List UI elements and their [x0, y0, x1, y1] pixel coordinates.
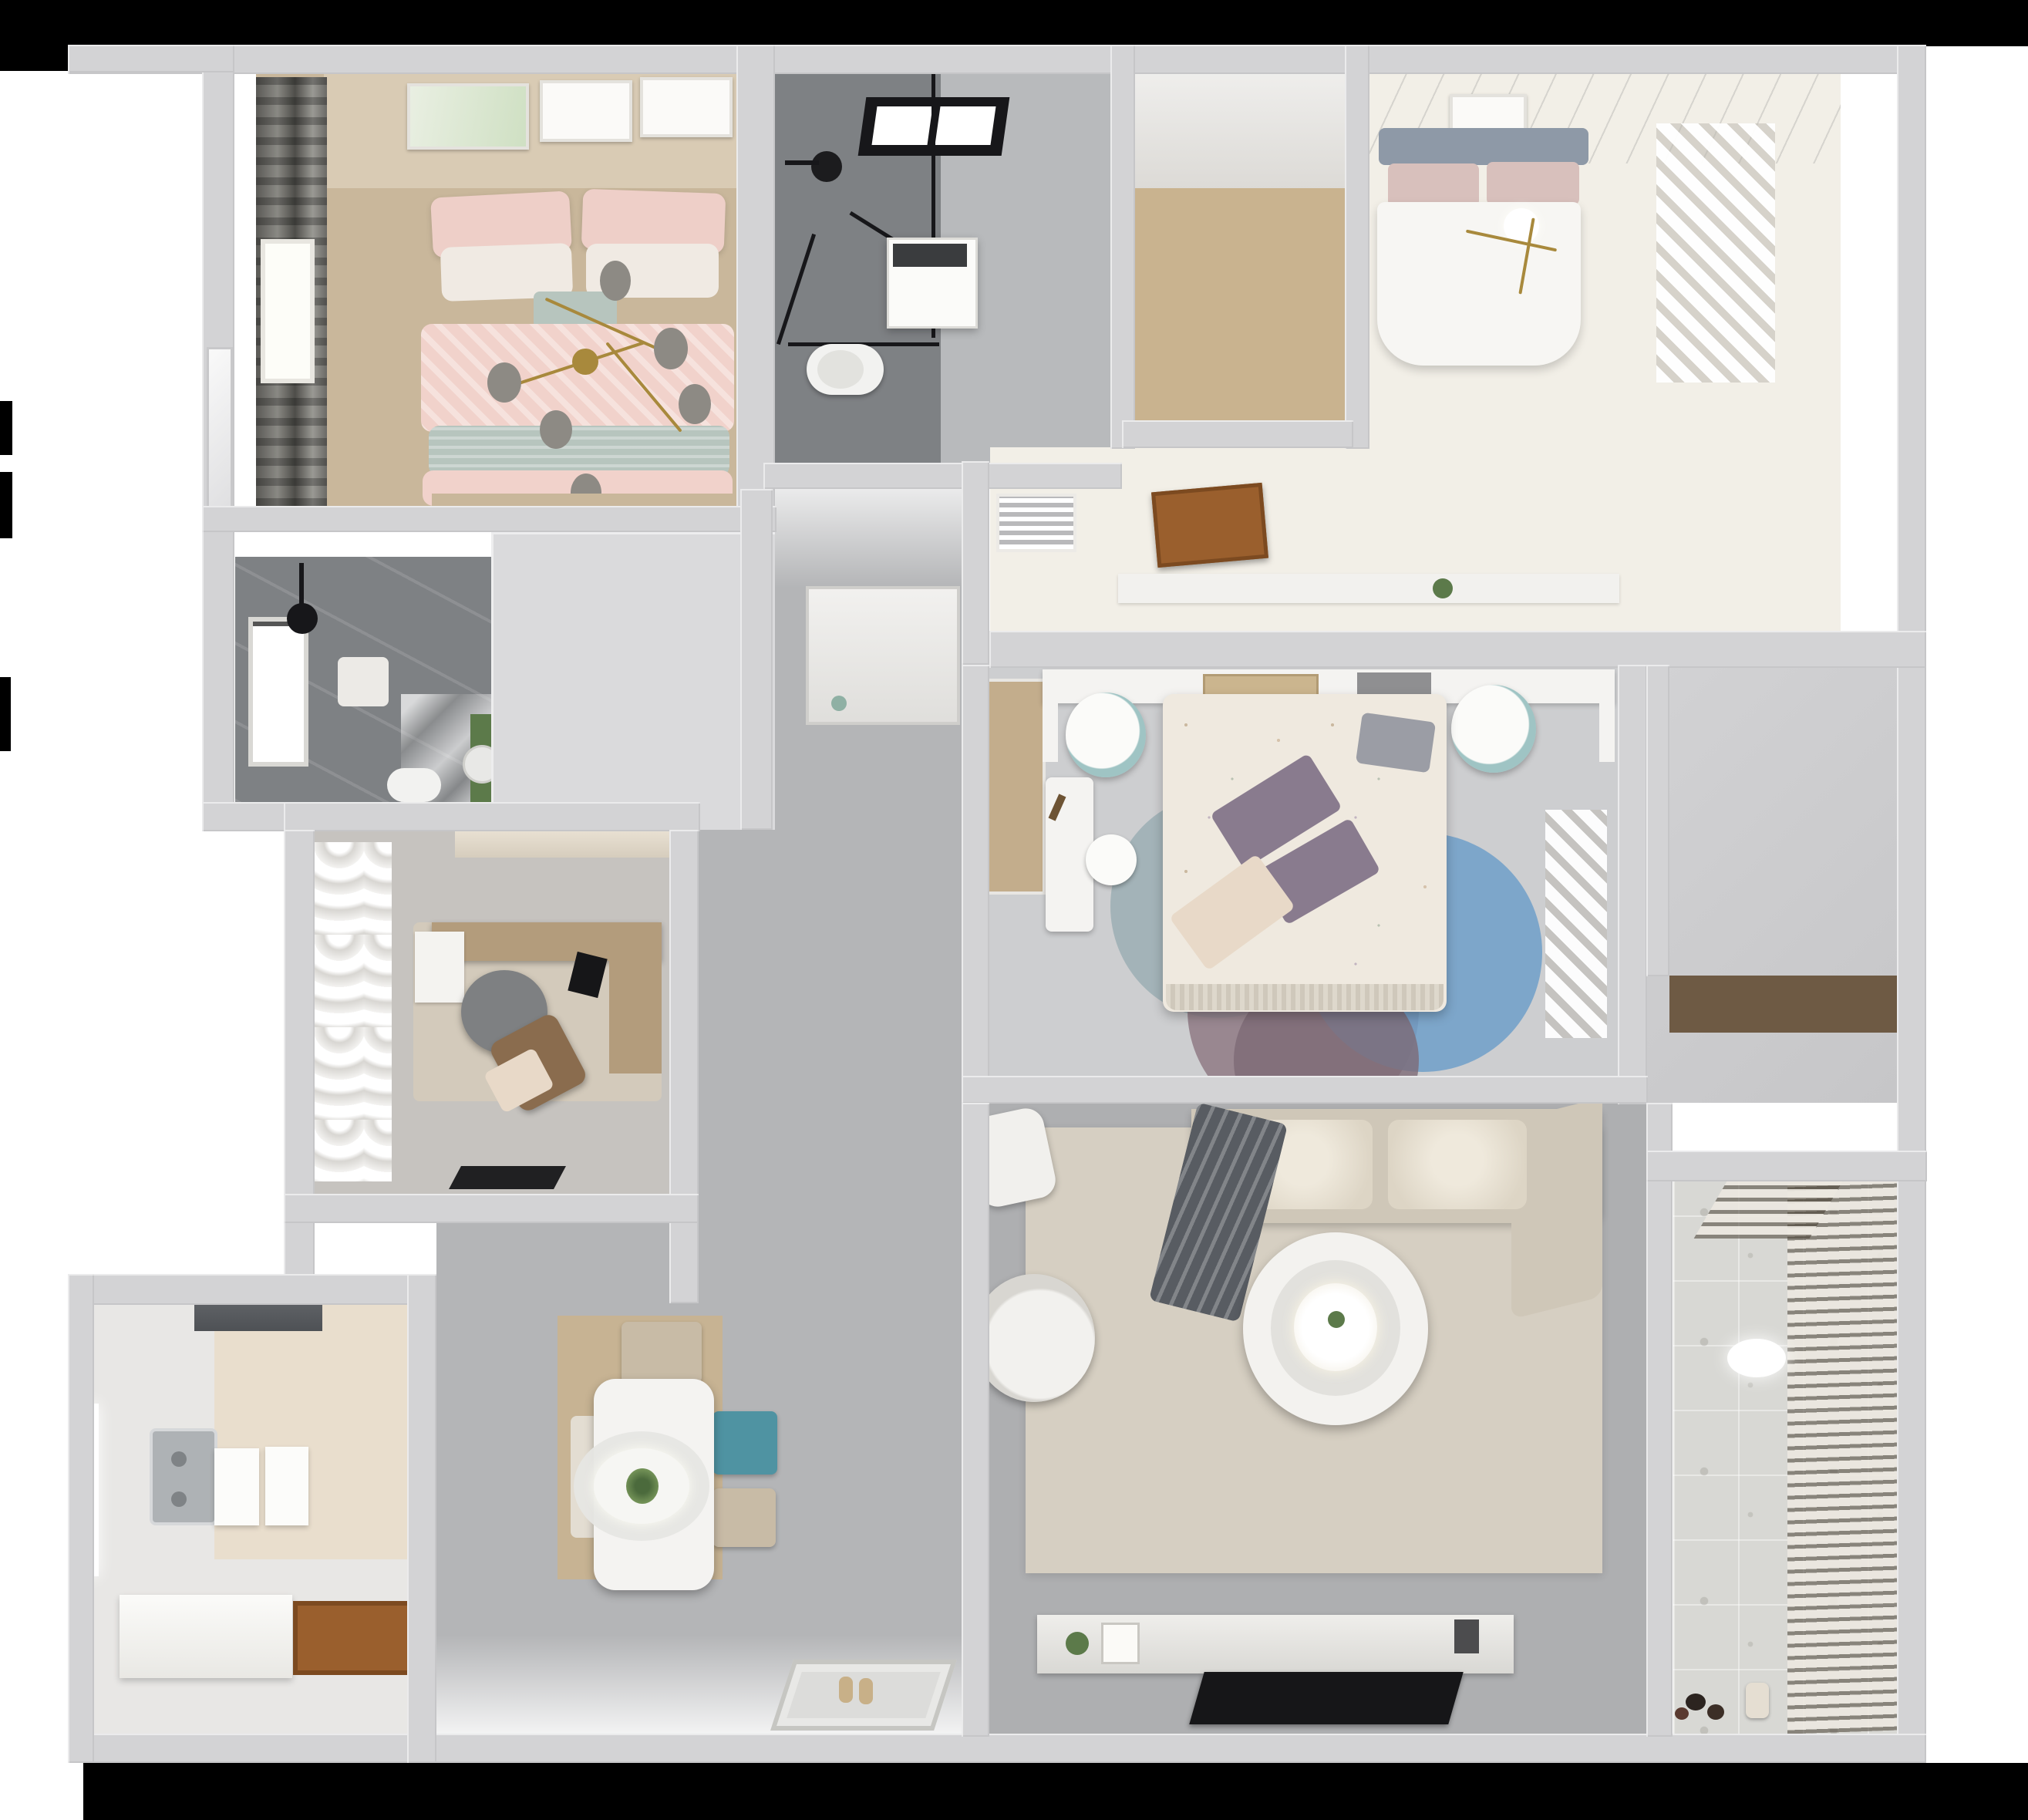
dining-chair-top [622, 1322, 702, 1384]
chandelier-bulb-4 [540, 410, 572, 449]
bathroom-left-pendant-rod [299, 563, 304, 606]
master-sheer-curtain [1656, 123, 1775, 383]
sofa-cushion-2 [1388, 1120, 1527, 1209]
study-papers [415, 932, 464, 1003]
kitchen-sink-drain-1 [171, 1451, 187, 1467]
pouf-right [1451, 685, 1536, 773]
bedroom-pink-window [261, 239, 315, 383]
mask-left-notch-1 [0, 401, 12, 455]
bedroom-middle-desk-chair [1086, 834, 1137, 885]
wall-outer-right [1897, 45, 1926, 1763]
wall-kitchen-right [407, 1274, 436, 1763]
entry-door-left [207, 347, 233, 531]
coffee-table-plant [1328, 1311, 1345, 1328]
room-closet-ceiling [1134, 72, 1346, 190]
toilet-top-seat [817, 350, 864, 389]
chandelier-bulb-1 [600, 261, 631, 301]
bathroom-left-shower-pendant [287, 603, 318, 634]
master-pillow-right [1487, 162, 1579, 205]
wall-art-frame-2 [540, 80, 632, 142]
kitchen-double-sink [150, 1428, 217, 1525]
wall-outer-bottom [68, 1734, 1926, 1763]
wall-kitchen-left [68, 1274, 94, 1763]
console-frames [1101, 1623, 1140, 1664]
mask-left-notch-2 [0, 472, 12, 538]
master-pillow-left [1388, 163, 1479, 207]
sill-plant [1433, 578, 1453, 598]
wall-outer-top [68, 45, 1925, 74]
kitchen-l-counter [120, 1595, 292, 1678]
balcony-toy-2 [1707, 1704, 1724, 1720]
bathroom-vanity-basins [893, 244, 941, 267]
pink-bed-rug-fringe [432, 494, 733, 506]
hall-cabinet [806, 586, 960, 725]
mask-left-notch-3 [0, 677, 11, 751]
corridor-floor-mid [698, 830, 962, 1228]
tv-panel [1189, 1672, 1463, 1724]
wall-bedroom-pink-right [736, 45, 775, 507]
console-speaker [1454, 1619, 1479, 1653]
room-closet-wood-floor [1134, 188, 1346, 424]
chandelier-bulb-5 [679, 384, 711, 424]
wall-art-frame-3 [640, 77, 733, 137]
balcony-louver-blinds [1787, 1179, 1902, 1734]
wall-corridor-left-upper [740, 489, 773, 830]
entry-slippers [839, 1677, 853, 1703]
wall-art-frame-1 [407, 83, 529, 150]
right-void-block [1646, 665, 1899, 1103]
kitchen-wood-door [293, 1601, 418, 1675]
balcony-basket [1746, 1683, 1769, 1718]
chandelier-bulb-2 [654, 328, 688, 369]
wall-bedroom-middle-bottom [962, 1076, 1648, 1104]
console-plant [1066, 1632, 1089, 1655]
living-armchair [973, 1274, 1095, 1402]
wall-closet-right [1345, 45, 1369, 449]
wall-corridor-right-upper [962, 461, 989, 665]
mask-bottom-band [83, 1763, 2028, 1820]
balcony-toy-1 [1686, 1694, 1706, 1710]
wall-master-strip-bottom [989, 631, 1926, 668]
wall-under-closet [1122, 420, 1353, 448]
bedroom-middle-shelf-leg-right [1599, 669, 1615, 762]
wall-bedroom-middle-left [962, 665, 989, 1104]
wall-bedroom-middle-right [1618, 665, 1647, 1104]
shower-arm [785, 160, 819, 165]
study-doormat [449, 1166, 566, 1189]
bathroom-left-window [248, 617, 308, 767]
wall-kitchen-top [68, 1274, 409, 1305]
balcony-toy-3 [1675, 1707, 1689, 1720]
chandelier-bulb-3 [487, 362, 521, 403]
kitchen-island-counter-1 [214, 1448, 259, 1525]
kitchen-island-counter-2 [265, 1447, 308, 1525]
wall-under-pink-bedroom [202, 506, 777, 532]
dining-chair-teal [712, 1411, 777, 1475]
bedroom-middle-bed-fringe [1166, 984, 1444, 1010]
study-top-shelf [455, 831, 669, 858]
wall-living-left [962, 1103, 989, 1737]
dining-plant-centerpiece [626, 1468, 659, 1504]
pink-bed-sage-throw [429, 426, 729, 477]
wall-study-right [669, 830, 699, 1303]
bedroom-middle-shelf-leg-left [1043, 669, 1058, 762]
master-headboard [1379, 128, 1588, 165]
wall-living-right [1646, 1103, 1673, 1737]
master-open-door [1151, 483, 1268, 568]
wall-under-bath-top [763, 463, 1122, 489]
study-curtain-wall [315, 842, 392, 1181]
pouf-left [1066, 693, 1146, 777]
master-sill-band [1118, 574, 1619, 603]
bedroom-middle-pillow-gray [1356, 713, 1436, 773]
wall-study-top [284, 802, 700, 831]
shower-head-icon [811, 151, 842, 182]
bathroom-skylight-pane-1 [871, 106, 932, 145]
kitchen-sink-drain-2 [171, 1491, 187, 1507]
bathroom-skylight-pane-2 [935, 106, 995, 145]
wallblock-bath2-right [491, 532, 775, 830]
balcony-ceiling-light [1727, 1339, 1786, 1377]
balcony-wood-shelf-band [1669, 976, 1901, 1033]
chandelier-hub [572, 349, 598, 375]
bedroom-middle-sheer-curtain [1545, 810, 1607, 1038]
bathroom-left-shower-mat [338, 657, 389, 706]
hall-cabinet-vase [831, 696, 847, 711]
dining-chair-bottom [712, 1488, 776, 1547]
master-duvet [1377, 202, 1581, 366]
bathroom-left-toilet [387, 768, 441, 802]
wall-bath-top-right [1110, 45, 1135, 449]
wall-balcony-top [1646, 1151, 1927, 1181]
entry-doormat [770, 1660, 957, 1731]
wall-outer-left-jog [68, 45, 234, 72]
floorplan-stage [0, 0, 2028, 1820]
study-desk-return [609, 922, 662, 1073]
wall-study-bottom [284, 1194, 699, 1223]
master-ac-vent [996, 494, 1076, 552]
corridor-ceiling-glow [771, 472, 962, 588]
wall-void-left [1646, 665, 1669, 976]
wall-study-left [284, 830, 315, 1303]
